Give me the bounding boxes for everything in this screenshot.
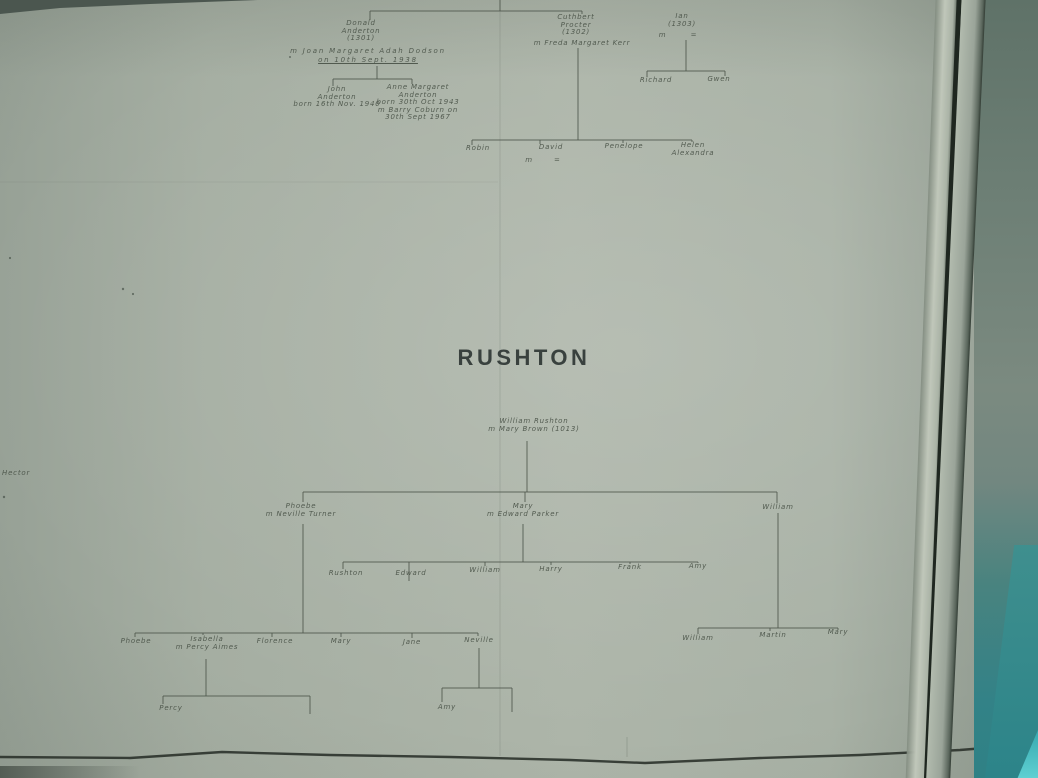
- margin-note-hector: Hector: [2, 470, 30, 478]
- anderton-tree-lines: [333, 0, 725, 145]
- ink-specks: [3, 56, 291, 498]
- person-rushton-gen2: Rushton: [329, 570, 363, 578]
- marriage-note-cuthbert: m Freda Margaret Kerr: [534, 40, 631, 48]
- person-florence-gen3: Florence: [257, 638, 293, 646]
- marriage-note-david: m =: [525, 157, 560, 165]
- person-william-gen1: William: [762, 504, 793, 512]
- bottom-left-shadow: [0, 766, 140, 778]
- paper-bottom-edge: [0, 746, 1010, 763]
- photo-of-family-tree-page: Donald Anderton (1301) m Joan Margaret A…: [0, 0, 1038, 778]
- person-mary-parker: Mary m Edward Parker: [487, 503, 559, 518]
- person-william-gen3: William: [682, 635, 713, 643]
- person-mary-gen3: Mary: [331, 638, 352, 646]
- person-jane-gen3: Jane: [403, 639, 421, 647]
- person-robin: Robin: [466, 145, 490, 153]
- person-phoebe-turner: Phoebe m Neville Turner: [266, 503, 336, 518]
- person-percy-gen4: Percy: [159, 705, 182, 713]
- marriage-note-donald-line2: on 10th Sept. 1938: [318, 57, 418, 65]
- person-ian: Ian (1303): [668, 13, 696, 28]
- person-william-gen2: William: [469, 567, 500, 575]
- person-helen-alexandra: Helen Alexandra: [672, 142, 715, 157]
- marriage-note-ian: m =: [659, 32, 698, 40]
- person-amy-gen4: Amy: [438, 704, 456, 712]
- person-martin-gen3: Martin: [759, 632, 786, 640]
- person-amy-gen2: Amy: [689, 563, 707, 571]
- person-neville-gen3: Neville: [464, 637, 493, 645]
- top-left-shadow: [0, 0, 258, 14]
- paper-creases: [0, 0, 627, 757]
- person-isabella-gen3: Isabella m Percy Aimes: [176, 636, 239, 651]
- person-richard: Richard: [640, 77, 672, 85]
- family-tree-lines: [0, 0, 1038, 778]
- marriage-note-donald-line1: m Joan Margaret Adah Dodson: [290, 48, 446, 56]
- person-harry-gen2: Harry: [539, 566, 562, 574]
- person-mary2-gen3: Mary: [828, 629, 849, 637]
- rushton-tree-lines: [135, 441, 838, 714]
- person-john-anderton: John Anderton born 16th Nov. 1940: [293, 86, 380, 109]
- person-anne-margaret-anderton: Anne Margaret Anderton born 30th Oct 194…: [376, 84, 459, 122]
- person-donald-anderton: Donald Anderton (1301): [342, 20, 381, 43]
- person-edward-gen2: Edward: [395, 570, 426, 578]
- person-frank-gen2: Frank: [618, 564, 642, 572]
- person-david: David: [539, 144, 563, 152]
- person-gwen: Gwen: [707, 76, 730, 84]
- family-title-rushton: RUSHTON: [458, 345, 591, 371]
- person-phoebe-gen3: Phoebe: [121, 638, 152, 646]
- person-penelope: Penelope: [605, 143, 644, 151]
- person-william-rushton: William Rushton m Mary Brown (1013): [488, 418, 579, 433]
- person-cuthbert-procter: Cuthbert Procter (1302): [557, 14, 594, 37]
